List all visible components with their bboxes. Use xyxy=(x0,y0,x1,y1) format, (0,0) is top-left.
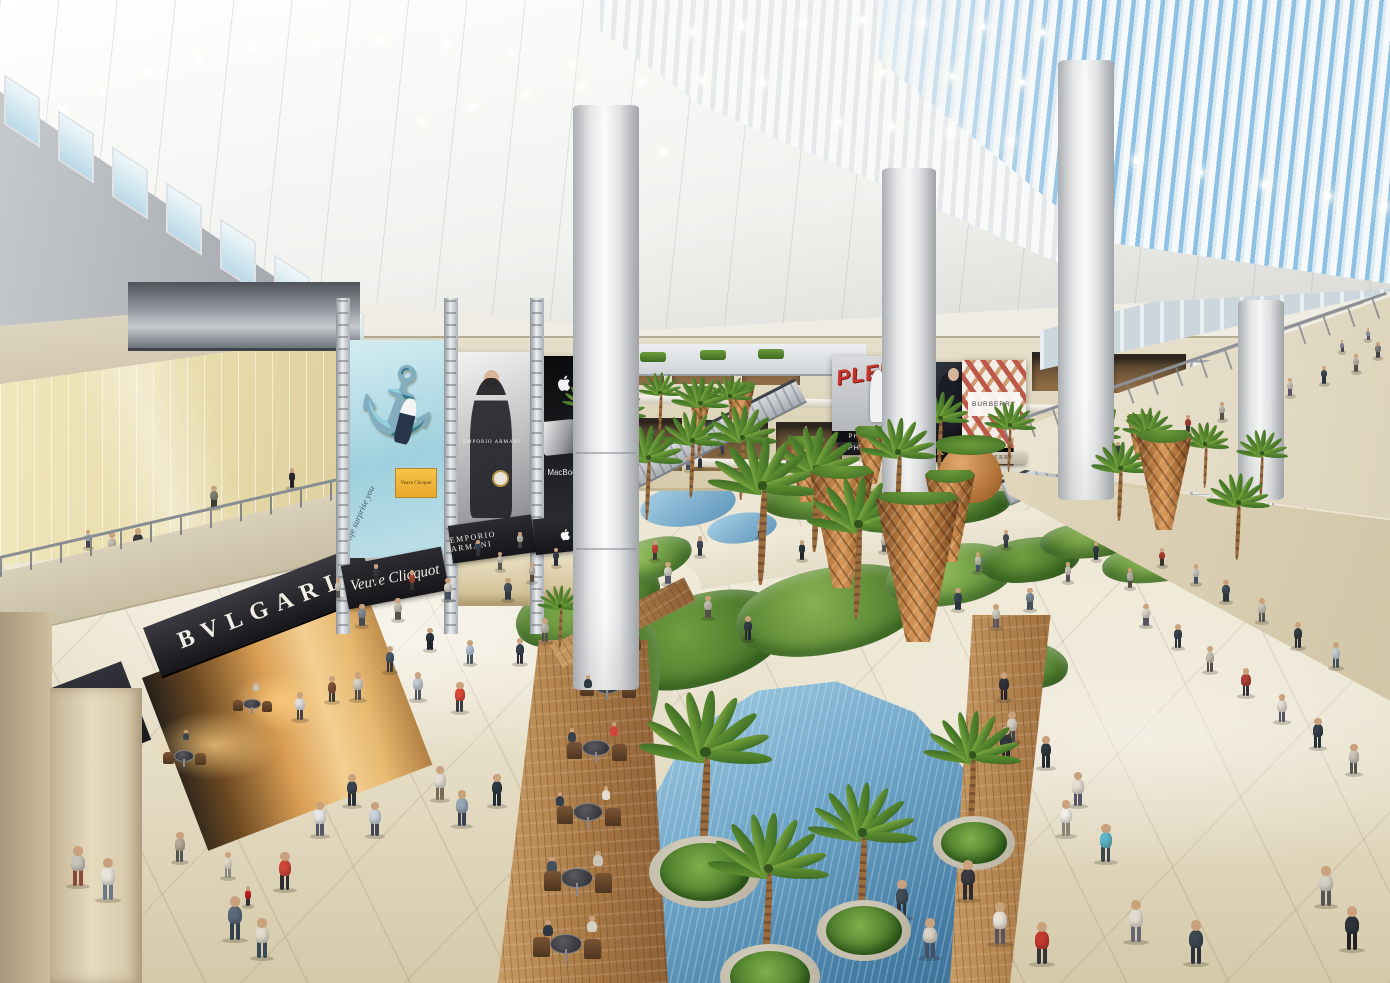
person-leg xyxy=(1191,946,1195,964)
person-leg xyxy=(352,792,355,806)
person xyxy=(516,638,525,664)
person-torso xyxy=(101,867,115,885)
person-torso xyxy=(434,773,446,787)
person-head xyxy=(976,552,981,557)
person-torso xyxy=(1185,419,1191,426)
veuve-clicquot-poster: ⚓ Veuve Clicquot let life surprise you xyxy=(346,340,445,558)
cafe-table xyxy=(582,740,610,757)
person xyxy=(652,540,659,560)
person-torso xyxy=(799,544,806,552)
person-leg xyxy=(995,927,999,944)
person-shadow xyxy=(250,956,274,961)
person-torso xyxy=(697,540,704,548)
person-torso xyxy=(245,890,252,898)
person-torso xyxy=(568,732,577,742)
person xyxy=(541,618,549,642)
person-torso xyxy=(1127,572,1134,580)
person-torso xyxy=(1287,382,1293,390)
person-leg xyxy=(460,699,463,712)
armani-poster-text: EMPORIO ARMANI xyxy=(452,440,532,445)
person-leg xyxy=(348,792,351,806)
person-leg xyxy=(969,883,973,900)
person-torso xyxy=(455,688,465,701)
person xyxy=(1340,340,1344,352)
person-head xyxy=(1066,562,1071,567)
person-torso xyxy=(71,855,85,872)
person-head xyxy=(993,604,999,610)
person-torso xyxy=(1332,648,1341,659)
person-head xyxy=(1259,598,1265,604)
person xyxy=(369,802,381,836)
person-head xyxy=(476,540,480,544)
person-torso xyxy=(1026,593,1033,602)
person-leg xyxy=(280,874,284,890)
person-leg xyxy=(73,869,77,886)
person-shadow xyxy=(1029,962,1055,967)
person-torso xyxy=(492,781,503,794)
person xyxy=(1332,642,1341,668)
champagne-label: Veuve Clicquot xyxy=(395,468,437,498)
person-torso xyxy=(369,809,381,823)
island-vegetation xyxy=(730,951,810,983)
person-head xyxy=(456,682,463,689)
cafe-table xyxy=(174,750,194,762)
cafe-chair xyxy=(163,752,174,764)
person-head xyxy=(73,846,83,856)
person-torso xyxy=(1222,585,1229,594)
person xyxy=(1035,922,1049,964)
planter-foliage xyxy=(934,435,1006,455)
person xyxy=(1159,548,1165,566)
scene: PLEIN PHILIPP PLEIN PHILIPP PLEIN VERSAC… xyxy=(0,0,1390,983)
person-leg xyxy=(1074,792,1077,806)
person-leg xyxy=(1131,925,1135,942)
table-leg xyxy=(576,883,578,896)
person-shadow xyxy=(1123,940,1149,945)
ceiling-light xyxy=(1262,182,1267,187)
person-head xyxy=(445,578,450,583)
ceiling-light xyxy=(836,120,841,125)
person xyxy=(409,570,416,590)
person xyxy=(444,578,451,600)
cafe-table xyxy=(550,934,582,953)
person-head xyxy=(517,638,523,644)
person xyxy=(1129,900,1143,942)
person-head xyxy=(1347,906,1358,917)
person-torso xyxy=(1353,358,1359,366)
veuve-sign-text: Veuve Clicquot xyxy=(349,561,441,595)
person xyxy=(1060,800,1072,836)
ceiling-light xyxy=(890,124,895,129)
cafe-table xyxy=(573,803,603,821)
person-torso xyxy=(1041,743,1052,756)
bridge-planter xyxy=(640,352,666,362)
person-head xyxy=(925,918,935,928)
table-leg xyxy=(606,690,608,700)
person-torso xyxy=(584,679,592,688)
person-leg xyxy=(493,792,496,806)
person-head xyxy=(705,596,710,601)
person xyxy=(456,790,468,826)
person-torso xyxy=(1340,343,1344,348)
person xyxy=(1241,668,1251,696)
person xyxy=(517,532,522,548)
seated-person xyxy=(183,730,190,742)
person xyxy=(1072,772,1084,806)
person xyxy=(1193,564,1200,584)
person-head xyxy=(395,598,400,603)
person-leg xyxy=(263,941,267,958)
person-leg xyxy=(1327,889,1331,906)
person-torso xyxy=(497,556,503,564)
ceiling-light xyxy=(660,150,665,155)
ceiling-light xyxy=(470,104,475,109)
ceiling-light xyxy=(760,80,765,85)
person xyxy=(71,846,85,886)
ceiling-light xyxy=(100,88,105,93)
person xyxy=(504,578,511,600)
person-torso xyxy=(353,678,363,690)
person-head xyxy=(1194,564,1199,569)
table-leg xyxy=(251,707,253,714)
person-torso xyxy=(1072,779,1084,793)
person xyxy=(314,802,326,836)
person xyxy=(1222,580,1229,602)
person-head xyxy=(176,832,183,839)
person-shadow xyxy=(987,942,1013,947)
cafe-chair xyxy=(544,871,561,890)
person-torso xyxy=(335,582,342,590)
person-torso xyxy=(1241,674,1251,686)
person-torso xyxy=(1319,875,1333,892)
person-torso xyxy=(289,472,296,480)
person-leg xyxy=(440,786,443,800)
cafe-chair xyxy=(595,873,612,892)
palm-frond xyxy=(940,418,969,424)
ceiling-light xyxy=(444,42,449,47)
ceiling-light xyxy=(252,46,257,51)
person xyxy=(1093,542,1099,560)
person-leg xyxy=(1012,729,1015,742)
person-leg xyxy=(1137,925,1141,942)
person-head xyxy=(1279,694,1286,701)
cafe-chair xyxy=(612,744,627,761)
person xyxy=(1294,622,1303,648)
person-head xyxy=(995,902,1005,912)
person-torso xyxy=(704,601,711,610)
person xyxy=(744,616,752,640)
person xyxy=(386,646,395,672)
table-leg xyxy=(183,759,185,767)
person-head xyxy=(493,774,501,782)
person-leg xyxy=(1321,889,1325,906)
cafe-chair xyxy=(584,939,601,958)
person xyxy=(101,858,115,900)
person xyxy=(664,562,671,584)
person xyxy=(175,832,185,862)
person-head xyxy=(745,616,751,622)
person-shadow xyxy=(95,898,121,903)
person-leg xyxy=(1078,792,1081,806)
person xyxy=(704,596,711,618)
seated-person xyxy=(602,786,611,802)
seated-person xyxy=(584,675,592,690)
person-torso xyxy=(1100,832,1113,848)
ceiling-light xyxy=(880,70,885,75)
person-torso xyxy=(1035,931,1049,949)
table-leg xyxy=(587,817,589,829)
person-torso xyxy=(1277,700,1287,712)
ceiling-light xyxy=(570,62,575,67)
ceiling-light xyxy=(1134,158,1139,163)
person xyxy=(697,536,704,556)
person-leg xyxy=(79,869,83,886)
person-leg xyxy=(109,883,113,900)
person xyxy=(1258,598,1266,622)
person-leg xyxy=(1101,846,1105,862)
person-torso xyxy=(255,927,269,944)
person-torso xyxy=(426,633,433,642)
person xyxy=(1206,646,1215,672)
person-torso xyxy=(1193,568,1200,576)
person xyxy=(1313,718,1323,748)
person-head xyxy=(415,672,422,679)
person-head xyxy=(1191,920,1202,931)
person-torso xyxy=(314,809,326,823)
bridge-planter xyxy=(758,349,784,359)
person-shadow xyxy=(66,884,90,889)
person-torso xyxy=(1129,909,1143,927)
person-head xyxy=(427,628,432,633)
person-torso xyxy=(529,566,536,574)
person-leg xyxy=(931,941,935,958)
person xyxy=(1349,744,1359,774)
person xyxy=(455,682,465,712)
cafe-chair xyxy=(605,808,621,826)
stone-pillar xyxy=(50,688,142,983)
person xyxy=(353,672,363,700)
structural-column xyxy=(573,105,639,690)
person-torso xyxy=(328,682,337,693)
person-torso xyxy=(386,652,395,663)
person-head xyxy=(336,578,341,583)
person xyxy=(1127,568,1134,588)
seated-person xyxy=(253,681,259,692)
person-shadow xyxy=(956,898,980,903)
person-leg xyxy=(462,811,466,826)
person-torso xyxy=(444,583,451,592)
person xyxy=(492,774,503,806)
person xyxy=(394,598,401,620)
person-head xyxy=(963,860,973,870)
person-torso xyxy=(541,623,549,633)
person-torso xyxy=(253,684,259,691)
person-leg xyxy=(1318,735,1321,748)
person-torso xyxy=(1313,724,1323,737)
person-head xyxy=(1008,712,1015,719)
person xyxy=(1287,378,1293,396)
person-head xyxy=(1207,646,1213,652)
ceiling-light xyxy=(420,120,425,125)
person-head xyxy=(505,578,510,583)
cafe-chair xyxy=(557,806,573,824)
person-leg xyxy=(1066,821,1070,836)
island-vegetation xyxy=(826,906,901,955)
person-torso xyxy=(228,906,243,924)
ceiling-light xyxy=(524,92,529,97)
person-torso xyxy=(999,678,1009,690)
person-head xyxy=(1223,580,1228,585)
person-leg xyxy=(375,822,378,836)
person-torso xyxy=(1003,534,1009,542)
person xyxy=(289,468,296,488)
left-stone-edge xyxy=(0,612,52,983)
person-torso xyxy=(664,567,671,576)
ceiling-light xyxy=(1008,138,1013,143)
person-torso xyxy=(992,609,1000,619)
person xyxy=(1065,562,1072,582)
person-torso xyxy=(593,855,602,866)
person-head xyxy=(1376,342,1380,346)
person-leg xyxy=(458,811,462,826)
person xyxy=(255,918,269,958)
table-leg xyxy=(565,949,567,962)
person xyxy=(961,860,975,900)
person-torso xyxy=(175,838,185,851)
person xyxy=(1219,402,1225,420)
person-head xyxy=(257,918,267,928)
person-shadow xyxy=(918,956,942,961)
person-torso xyxy=(1345,916,1360,934)
person-torso xyxy=(456,798,468,813)
seated-person xyxy=(610,722,619,738)
person-head xyxy=(246,886,251,891)
person-torso xyxy=(1366,331,1370,336)
person xyxy=(954,588,961,610)
person-torso xyxy=(1093,546,1099,554)
person-head xyxy=(1333,642,1339,648)
person-torso xyxy=(475,543,480,550)
person-head xyxy=(467,640,473,646)
person-head xyxy=(955,588,960,593)
person xyxy=(475,540,480,556)
person xyxy=(553,548,559,566)
ceiling-light xyxy=(640,80,645,85)
ceiling-light xyxy=(314,40,319,45)
person xyxy=(1353,354,1359,372)
person xyxy=(295,692,305,720)
versace-model-face xyxy=(948,368,959,381)
bridge-planter xyxy=(700,350,726,360)
person-leg xyxy=(286,874,290,890)
person-torso xyxy=(347,781,358,794)
person-head xyxy=(103,858,113,868)
apple-logo-icon xyxy=(556,524,574,545)
emporio-armani-poster: EMPORIO ARMANI xyxy=(452,352,532,542)
person-head xyxy=(1131,900,1141,910)
person-torso xyxy=(279,860,292,876)
person-head xyxy=(1143,604,1148,609)
person-torso xyxy=(961,869,975,886)
person-torso xyxy=(1189,930,1204,948)
ceiling-light xyxy=(580,84,585,89)
person-head xyxy=(542,618,548,624)
person-head xyxy=(1295,622,1301,628)
person xyxy=(1100,824,1113,862)
person-head xyxy=(1101,824,1110,833)
person-torso xyxy=(744,621,752,631)
person-leg xyxy=(236,922,240,940)
person-head xyxy=(211,486,216,491)
ceiling-light xyxy=(508,50,513,55)
person xyxy=(1026,588,1033,610)
palm-frond xyxy=(700,403,729,409)
person-torso xyxy=(373,568,380,576)
person-head xyxy=(1243,668,1250,675)
person-leg xyxy=(180,849,183,862)
person-torso xyxy=(210,491,217,500)
person xyxy=(466,640,474,664)
person xyxy=(245,886,252,906)
person xyxy=(434,766,446,800)
ceiling-light xyxy=(146,70,151,75)
ceiling-light xyxy=(1198,170,1203,175)
person-leg xyxy=(1347,932,1351,950)
column-ring xyxy=(576,452,636,454)
person-leg xyxy=(371,822,374,836)
person-shadow xyxy=(1094,860,1117,865)
person xyxy=(426,628,433,650)
person-leg xyxy=(497,792,500,806)
person xyxy=(358,604,365,626)
person-torso xyxy=(517,535,522,542)
person-head xyxy=(1321,866,1331,876)
person-torso xyxy=(409,574,416,582)
person-torso xyxy=(466,645,474,655)
person-torso xyxy=(553,552,559,560)
ceiling-light xyxy=(948,130,953,135)
person-leg xyxy=(230,922,234,940)
person-head xyxy=(1128,568,1133,573)
ceiling-light xyxy=(690,30,695,35)
person-torso xyxy=(1349,750,1359,763)
person-torso xyxy=(504,583,511,592)
cafe-table xyxy=(243,699,261,710)
palm-frond xyxy=(1205,444,1229,449)
person-torso xyxy=(1159,552,1165,560)
person-torso xyxy=(923,927,937,944)
person xyxy=(1041,736,1052,768)
person-leg xyxy=(1046,754,1049,768)
person-leg xyxy=(1107,846,1111,862)
person-torso xyxy=(1321,370,1327,378)
person-leg xyxy=(1037,947,1041,964)
cafe-chair xyxy=(233,700,243,711)
person-head xyxy=(1350,744,1357,751)
cafe-chair xyxy=(262,701,272,712)
person xyxy=(1319,866,1333,906)
ceiling-light xyxy=(378,38,383,43)
person-torso xyxy=(1206,652,1215,663)
cafe-chair xyxy=(567,742,582,759)
ceiling-light xyxy=(860,18,865,23)
person-head xyxy=(1027,588,1032,593)
person-head xyxy=(1062,800,1071,809)
person xyxy=(413,672,423,700)
person-torso xyxy=(954,593,961,602)
person xyxy=(1189,920,1204,964)
person-head xyxy=(1175,624,1181,630)
